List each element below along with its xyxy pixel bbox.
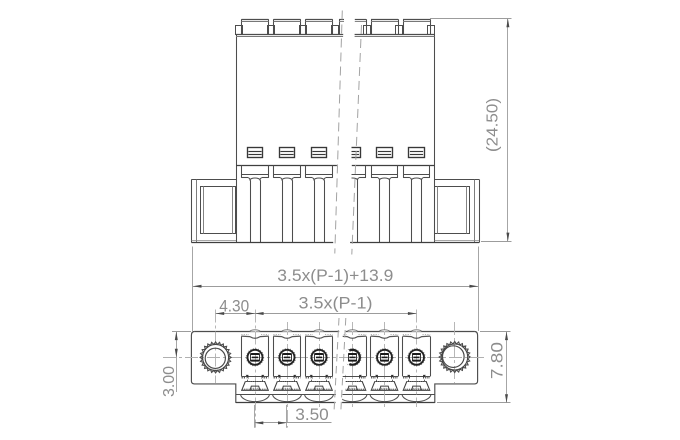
svg-text:3.50: 3.50 xyxy=(295,406,329,424)
svg-text:3.5x(P-1): 3.5x(P-1) xyxy=(299,293,373,312)
svg-text:4.30: 4.30 xyxy=(219,298,249,316)
svg-text:(24.50): (24.50) xyxy=(485,98,502,152)
svg-text:7.80: 7.80 xyxy=(488,342,506,379)
svg-text:3.5x(P-1)+13.9: 3.5x(P-1)+13.9 xyxy=(277,266,393,285)
svg-text:3.00: 3.00 xyxy=(161,366,178,397)
